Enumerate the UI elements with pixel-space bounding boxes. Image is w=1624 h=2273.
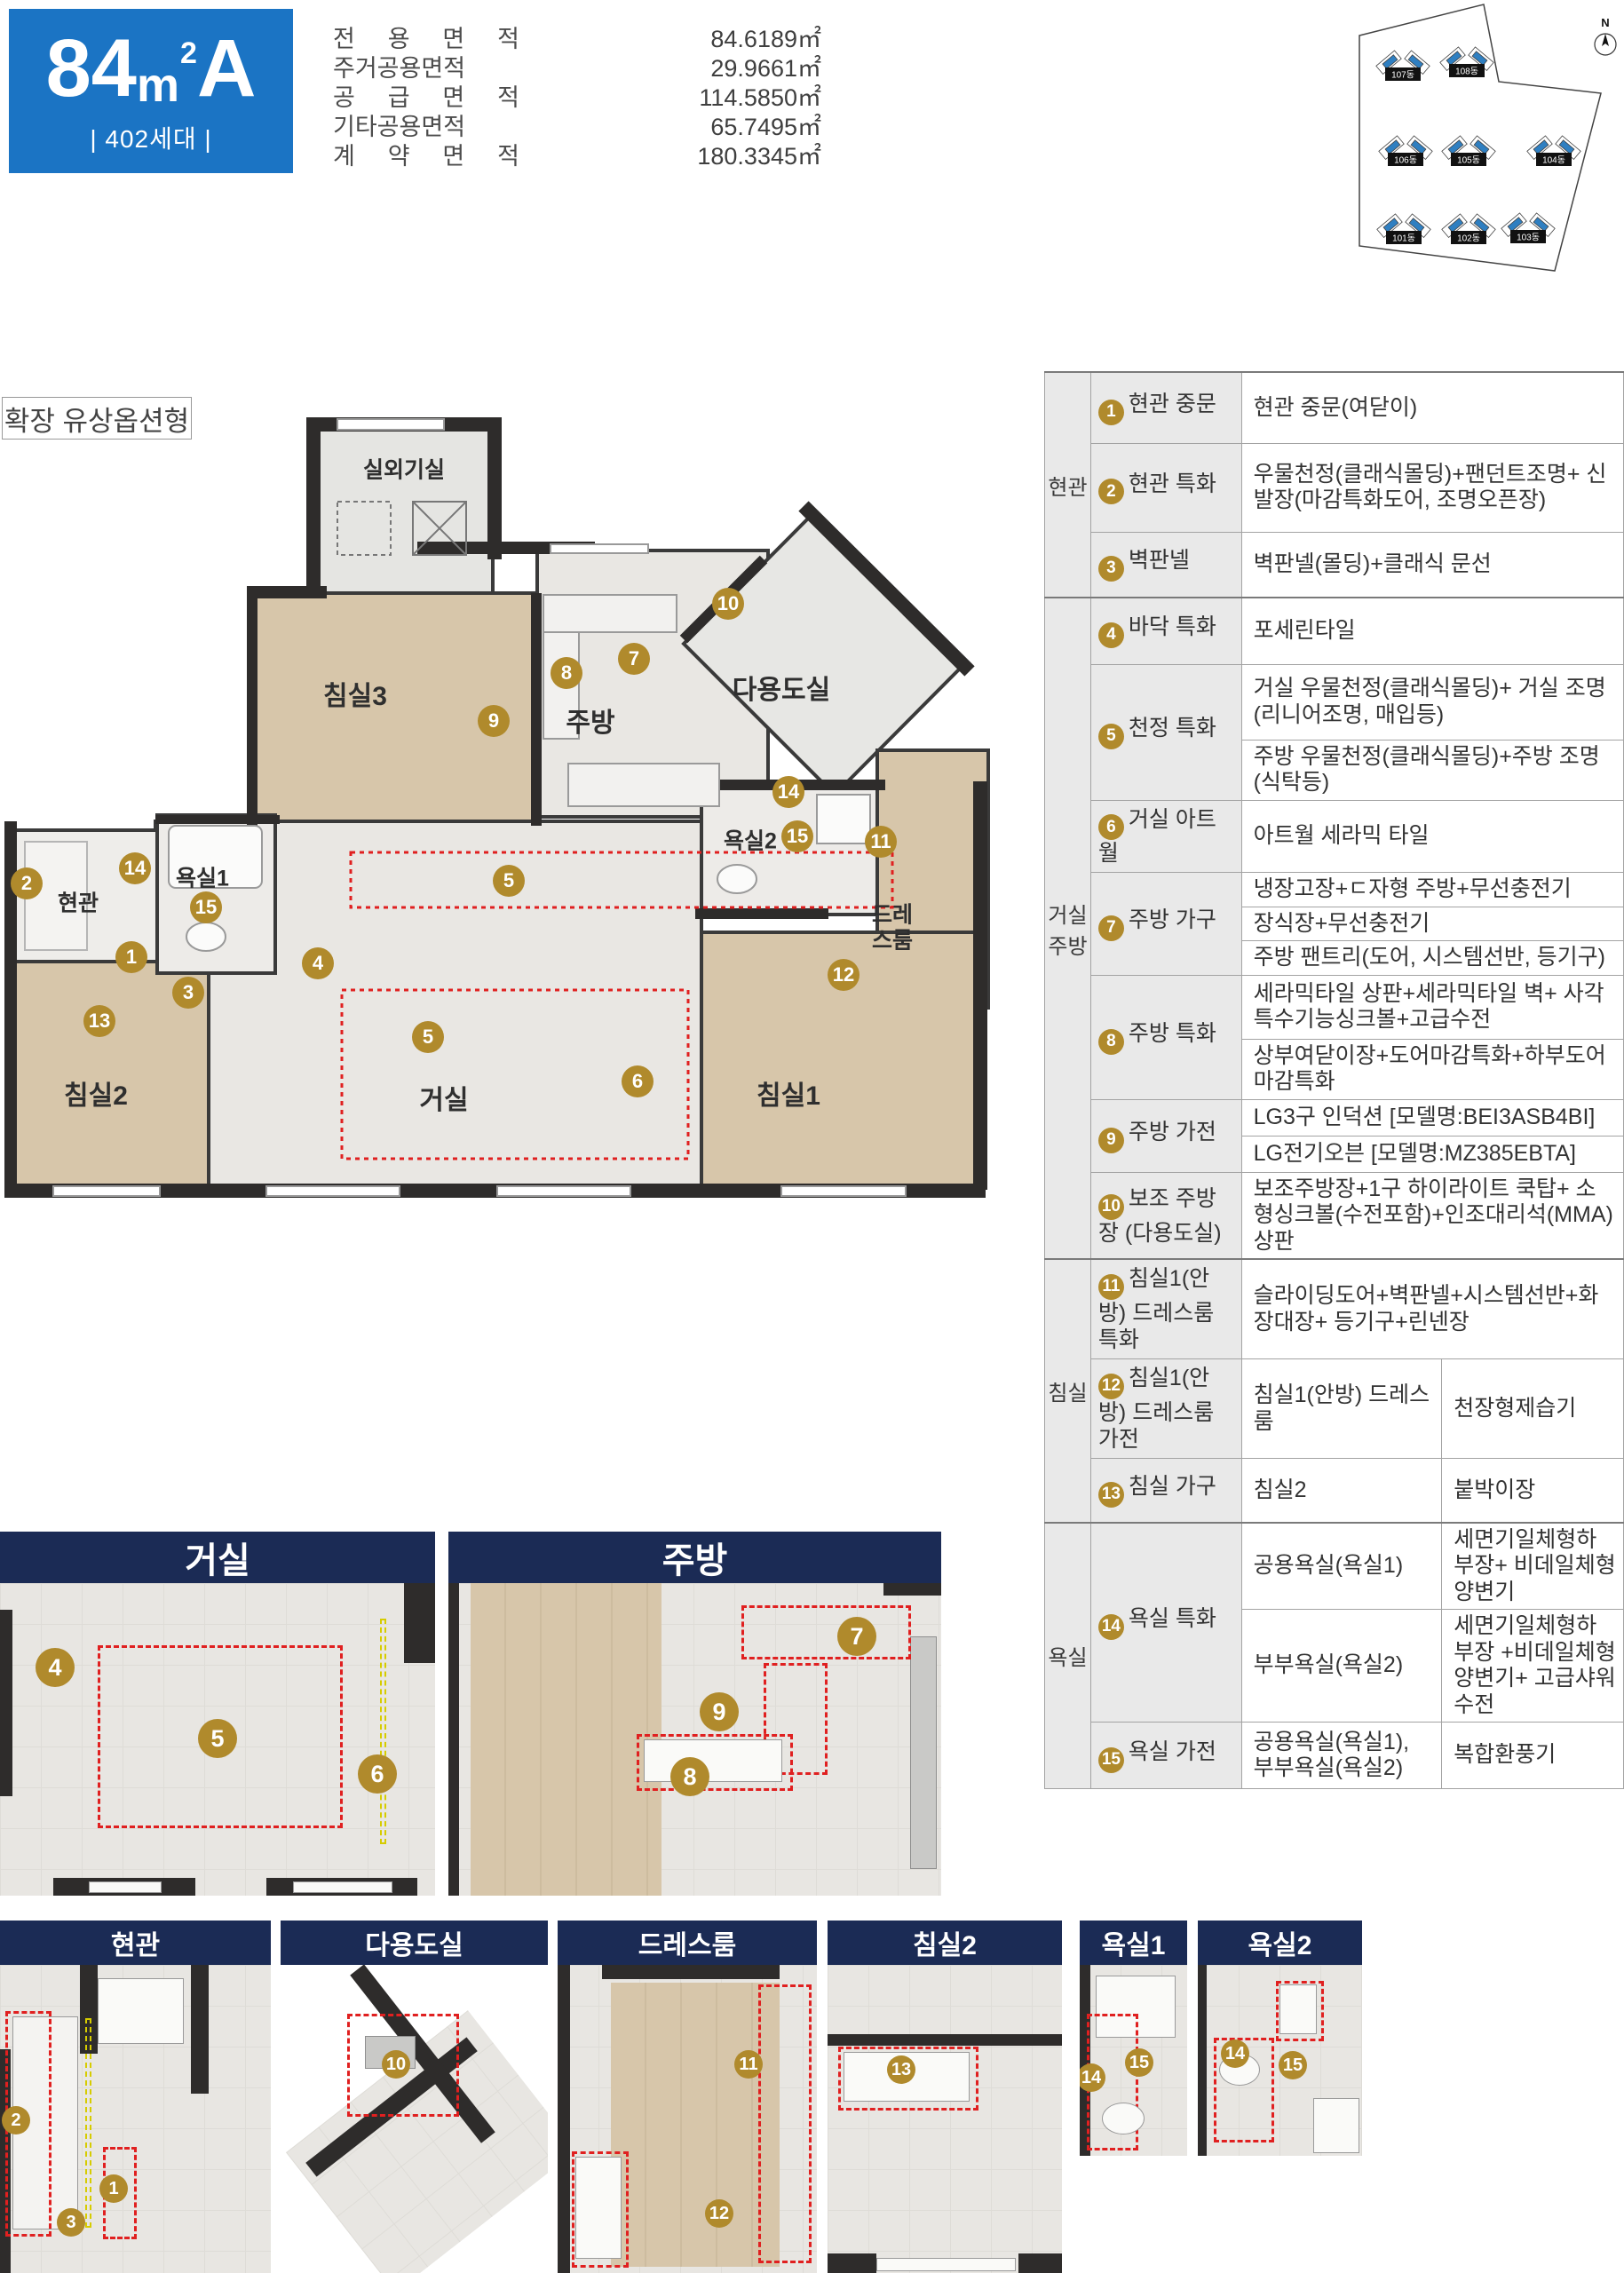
room-label: 실외기실 <box>363 458 445 484</box>
svg-text:101동: 101동 <box>1392 234 1415 244</box>
unit-type-title: 84 m2 A <box>46 28 257 109</box>
desc-cell: 주방 우물천정(클래식몰딩)+주방 조명(식탁등) <box>1241 740 1623 800</box>
marker-5: 5 <box>412 1021 444 1053</box>
desc-cell: 상부여닫이장+도어마감특화+하부도어마감특화 <box>1241 1039 1623 1099</box>
panel-decor <box>828 2253 876 2273</box>
panel-decor <box>380 1619 386 1844</box>
marker-3: 3 <box>57 2208 85 2237</box>
desc-cell: 공용욕실(욕실1) <box>1241 1523 1442 1610</box>
unit-size: 84 <box>46 28 137 109</box>
marker-11: 11 <box>734 2050 763 2079</box>
item-number-badge: 15 <box>1098 1747 1124 1773</box>
item-cell: 13침실 가구 <box>1090 1459 1241 1523</box>
panel-decor <box>883 1583 941 1596</box>
site-plan: N 107동108동106동105동104동101동102동103동 <box>1330 0 1624 300</box>
options-row: 2현관 특화우물천정(클래식몰딩)+팬던트조명+ 신발장(마감특화도어, 조명오… <box>1045 443 1624 532</box>
room-label: 다용도실 <box>733 676 830 707</box>
area-row: 계 약 면 적180.3345㎡ <box>333 137 821 166</box>
options-row: 거실주방4바닥 특화포세린타일 <box>1045 598 1624 664</box>
marker-3: 3 <box>172 977 204 1009</box>
area-table: 전 용 면 적84.6189㎡주거공용면적29.9661㎡공 급 면 적114.… <box>333 20 821 166</box>
room-label: 현관 <box>58 891 99 917</box>
marker-7: 7 <box>837 1617 876 1656</box>
desc-cell: 천장형제습기 <box>1442 1359 1624 1459</box>
panel-decor <box>471 1583 661 1896</box>
marker-9: 9 <box>478 705 510 737</box>
marker-8: 8 <box>670 1757 709 1796</box>
marker-9: 9 <box>700 1692 739 1731</box>
svg-text:102동: 102동 <box>1457 234 1480 244</box>
item-number-badge: 3 <box>1098 556 1124 582</box>
item-number-badge: 14 <box>1098 1614 1124 1640</box>
marker-11: 11 <box>865 826 897 858</box>
panel-decor <box>828 1965 1062 2034</box>
options-row: 9주방 가전LG3구 인덕션 [모델명:BEI3ASB4BI] <box>1045 1099 1624 1136</box>
desc-cell: 냉장고장+ㄷ자형 주방+무선충전기 <box>1241 873 1623 907</box>
desc-cell: 우물천정(클래식몰딩)+팬던트조명+ 신발장(마감특화도어, 조명오픈장) <box>1241 443 1623 532</box>
panel-title: 침실2 <box>828 1921 1062 1965</box>
svg-text:108동: 108동 <box>1455 67 1478 77</box>
options-row: 3벽판넬벽판넬(몰딩)+클래식 문선 <box>1045 532 1624 598</box>
panel-decor <box>293 1881 392 1893</box>
section-cell: 침실 <box>1045 1259 1091 1522</box>
marker-14: 14 <box>772 776 804 808</box>
area-value: 180.3345㎡ <box>519 137 821 171</box>
item-cell: 7주방 가구 <box>1090 873 1241 976</box>
compass-icon: N <box>1595 16 1616 55</box>
area-label: 계 약 면 적 <box>333 137 519 171</box>
marker-15: 15 <box>1279 2051 1307 2079</box>
panel-decor <box>85 2018 91 2228</box>
panel-decor <box>741 1605 911 1659</box>
desc-cell: 현관 중문(여닫이) <box>1241 372 1623 443</box>
marker-14: 14 <box>119 852 151 884</box>
options-row: 8주방 특화세라믹타일 상판+세라믹타일 벽+ 사각특수기능싱크볼+고급수전 <box>1045 975 1624 1039</box>
unit-superscript: 2 <box>180 38 197 68</box>
panel-decor <box>876 2258 1016 2271</box>
options-row: 5천정 특화거실 우물천정(클래식몰딩)+ 거실 조명(리니어조명, 매입등) <box>1045 664 1624 740</box>
options-row: 7주방 가구냉장고장+ㄷ자형 주방+무선충전기 <box>1045 873 1624 907</box>
item-cell: 14욕실 특화 <box>1090 1523 1241 1723</box>
panel-decor <box>1313 2098 1359 2153</box>
room-label: 침실2 <box>64 1081 128 1113</box>
item-number-badge: 11 <box>1098 1274 1124 1300</box>
options-row: 현관1현관 중문현관 중문(여닫이) <box>1045 372 1624 443</box>
svg-text:107동: 107동 <box>1391 70 1414 81</box>
item-cell: 5천정 특화 <box>1090 664 1241 800</box>
room-label: 침실1 <box>757 1081 820 1113</box>
panel-decor <box>828 2034 1062 2046</box>
panel-image: 213 <box>0 1965 271 2273</box>
marker-5: 5 <box>493 865 525 897</box>
desc-cell: 공용욕실(욕실1), 부부욕실(욕실2) <box>1241 1723 1442 1789</box>
marker-4: 4 <box>36 1648 75 1687</box>
panel-image: 10 <box>281 1965 548 2273</box>
marker-12: 12 <box>828 959 860 991</box>
panel-image: 798 <box>448 1583 941 1896</box>
options-row: 6거실 아트월아트월 세라믹 타일 <box>1045 800 1624 873</box>
unit-households: | 402세대 | <box>90 120 211 155</box>
item-cell: 3벽판넬 <box>1090 532 1241 598</box>
item-number-badge: 5 <box>1098 724 1124 749</box>
panel-decor <box>575 2157 622 2259</box>
desc-cell: LG3구 인덕션 [모델명:BEI3ASB4BI] <box>1241 1099 1623 1136</box>
main-floor-plan: 실외기실침실3주방다용도실욕실2드레 스룸침실1거실침실2현관욕실1214151… <box>0 417 994 1208</box>
desc-cell: 복합환풍기 <box>1442 1723 1624 1789</box>
room-label: 드레 스룸 <box>872 902 913 954</box>
unit-type-letter: A <box>197 28 256 109</box>
item-number-badge: 7 <box>1098 915 1124 941</box>
unit-type-badge: 84 m2 A | 402세대 | <box>9 9 293 173</box>
marker-13: 13 <box>887 2055 915 2084</box>
marker-15: 15 <box>781 820 813 852</box>
marker-10: 10 <box>712 588 744 620</box>
item-cell: 15욕실 가전 <box>1090 1723 1241 1789</box>
panel-decor <box>191 1965 209 2094</box>
area-row: 주거공용면적29.9661㎡ <box>333 49 821 78</box>
item-number-badge: 8 <box>1098 1029 1124 1055</box>
panel-decor <box>98 1978 184 2044</box>
panel-image: 1112 <box>558 1965 817 2273</box>
marker-6: 6 <box>622 1065 654 1097</box>
panel-title: 현관 <box>0 1921 271 1965</box>
marker-2: 2 <box>2 2106 30 2134</box>
room-label: 욕실2 <box>724 829 777 855</box>
options-row: 15욕실 가전공용욕실(욕실1), 부부욕실(욕실2)복합환풍기 <box>1045 1723 1624 1789</box>
marker-15: 15 <box>1125 2048 1153 2077</box>
item-number-badge: 2 <box>1098 479 1124 504</box>
panel-침실2: 침실213 <box>828 1921 1062 2273</box>
panel-드레스룸: 드레스룸1112 <box>558 1921 817 2273</box>
panel-decor <box>1102 2103 1145 2134</box>
panel-title: 욕실2 <box>1198 1921 1362 1965</box>
room-label: 욕실1 <box>176 867 229 892</box>
marker-4: 4 <box>302 947 334 979</box>
panel-현관: 현관213 <box>0 1921 271 2273</box>
item-cell: 12침실1(안방) 드레스룸 가전 <box>1090 1359 1241 1459</box>
svg-text:105동: 105동 <box>1457 155 1480 166</box>
desc-cell: 포세린타일 <box>1241 598 1623 664</box>
marker-2: 2 <box>11 867 43 899</box>
desc-cell: 부부욕실(욕실2) <box>1241 1610 1442 1723</box>
panel-image: 1415 <box>1080 1965 1187 2156</box>
desc-cell: 주방 팬트리(도어, 시스템선반, 등기구) <box>1241 941 1623 976</box>
desc-cell: 세면기일체형하부장 +비데일체형양변기+ 고급샤워수전 <box>1442 1610 1624 1723</box>
room-label: 거실 <box>419 1086 468 1117</box>
item-cell: 11침실1(안방) 드레스룸 특화 <box>1090 1259 1241 1358</box>
marker-14: 14 <box>1221 2039 1249 2068</box>
panel-title: 거실 <box>0 1532 435 1583</box>
area-row: 기타공용면적65.7495㎡ <box>333 107 821 137</box>
item-cell: 2현관 특화 <box>1090 443 1241 532</box>
panel-image: 1415 <box>1198 1965 1362 2156</box>
item-number-badge: 10 <box>1098 1194 1124 1220</box>
marker-1: 1 <box>99 2174 128 2203</box>
desc-cell: 침실2 <box>1241 1459 1442 1523</box>
desc-cell: 거실 우물천정(클래식몰딩)+ 거실 조명(리니어조명, 매입등) <box>1241 664 1623 740</box>
area-row: 전 용 면 적84.6189㎡ <box>333 20 821 49</box>
panel-decor <box>602 1965 780 1979</box>
item-number-badge: 13 <box>1098 1482 1124 1508</box>
panel-decor <box>1279 1984 1317 2034</box>
item-cell: 9주방 가전 <box>1090 1099 1241 1172</box>
marker-5: 5 <box>198 1719 237 1758</box>
desc-cell: 붙박이장 <box>1442 1459 1624 1523</box>
panel-decor <box>1018 2253 1062 2273</box>
marker-8: 8 <box>551 657 582 689</box>
panel-decor <box>89 1881 162 1893</box>
marker-10: 10 <box>382 2050 410 2079</box>
marker-1: 1 <box>115 941 147 973</box>
svg-text:N: N <box>1601 16 1609 29</box>
desc-cell: 보조주방장+1구 하이라이트 쿡탑+ 소형싱크볼(수전포함)+인조대리석(MMA… <box>1241 1172 1623 1259</box>
room-label: 주방 <box>566 709 614 740</box>
options-row: 10보조 주방장 (다용도실)보조주방장+1구 하이라이트 쿡탑+ 소형싱크볼(… <box>1045 1172 1624 1259</box>
section-cell: 거실주방 <box>1045 598 1091 1259</box>
panel-decor <box>1198 1965 1207 2156</box>
svg-text:106동: 106동 <box>1394 155 1417 166</box>
room-label: 침실3 <box>323 682 387 713</box>
panel-image: 456 <box>0 1583 435 1896</box>
panel-decor <box>448 1583 459 1896</box>
item-number-badge: 6 <box>1098 814 1124 840</box>
options-row: 12침실1(안방) 드레스룸 가전침실1(안방) 드레스룸천장형제습기 <box>1045 1359 1624 1459</box>
marker-15: 15 <box>190 891 222 923</box>
panel-title: 욕실1 <box>1080 1921 1187 1965</box>
options-row: 침실11침실1(안방) 드레스룸 특화슬라이딩도어+벽판넬+시스템선반+화장대장… <box>1045 1259 1624 1358</box>
panel-decor <box>758 1984 812 2263</box>
desc-cell: 아트월 세라믹 타일 <box>1241 800 1623 873</box>
panel-거실: 거실456 <box>0 1532 435 1896</box>
options-table: 현관1현관 중문현관 중문(여닫이)2현관 특화우물천정(클래식몰딩)+팬던트조… <box>1044 371 1624 1789</box>
desc-cell: 슬라이딩도어+벽판넬+시스템선반+화장대장+ 등기구+린넨장 <box>1241 1259 1623 1358</box>
item-cell: 6거실 아트월 <box>1090 800 1241 873</box>
panel-주방: 주방798 <box>448 1532 941 1896</box>
svg-text:104동: 104동 <box>1542 155 1565 166</box>
section-cell: 현관 <box>1045 372 1091 598</box>
panel-title: 주방 <box>448 1532 941 1583</box>
panel-decor <box>0 1610 12 1796</box>
panel-title: 다용도실 <box>281 1921 548 1965</box>
brochure-page: 84 m2 A | 402세대 | 전 용 면 적84.6189㎡주거공용면적2… <box>0 0 1624 2273</box>
marker-12: 12 <box>705 2199 733 2228</box>
item-number-badge: 1 <box>1098 400 1124 425</box>
section-cell: 욕실 <box>1045 1523 1091 1789</box>
desc-cell: 침실1(안방) 드레스룸 <box>1241 1359 1442 1459</box>
item-number-badge: 12 <box>1098 1374 1124 1399</box>
unit-symbol: m2 <box>137 61 197 109</box>
marker-6: 6 <box>358 1754 397 1794</box>
desc-cell: 세라믹타일 상판+세라믹타일 벽+ 사각특수기능싱크볼+고급수전 <box>1241 975 1623 1039</box>
panel-decor <box>611 1983 780 2267</box>
desc-cell: LG전기오븐 [모델명:MZ385EBTA] <box>1241 1136 1623 1172</box>
marker-7: 7 <box>618 643 650 675</box>
panel-욕실2: 욕실21415 <box>1198 1921 1362 2156</box>
panel-decor <box>644 1739 782 1782</box>
item-number-badge: 9 <box>1098 1128 1124 1153</box>
svg-text:103동: 103동 <box>1517 233 1540 243</box>
desc-cell: 세면기일체형하부장+ 비데일체형양변기 <box>1442 1523 1624 1610</box>
panel-욕실1: 욕실11415 <box>1080 1921 1187 2156</box>
options-row: 13침실 가구침실2붙박이장 <box>1045 1459 1624 1523</box>
panel-image: 13 <box>828 1965 1062 2273</box>
item-cell: 10보조 주방장 (다용도실) <box>1090 1172 1241 1259</box>
marker-13: 13 <box>83 1005 115 1037</box>
panel-decor <box>404 1583 435 1663</box>
panel-다용도실: 다용도실10 <box>281 1921 548 2273</box>
panel-decor <box>910 1636 937 1869</box>
item-cell: 4바닥 특화 <box>1090 598 1241 664</box>
panel-title: 드레스룸 <box>558 1921 817 1965</box>
area-row: 공 급 면 적114.5850㎡ <box>333 78 821 107</box>
panel-decor <box>558 1965 570 2273</box>
options-row: 욕실14욕실 특화공용욕실(욕실1)세면기일체형하부장+ 비데일체형양변기 <box>1045 1523 1624 1610</box>
item-cell: 8주방 특화 <box>1090 975 1241 1099</box>
item-cell: 1현관 중문 <box>1090 372 1241 443</box>
desc-cell: 장식장+무선충전기 <box>1241 907 1623 941</box>
item-number-badge: 4 <box>1098 622 1124 648</box>
desc-cell: 벽판넬(몰딩)+클래식 문선 <box>1241 532 1623 598</box>
